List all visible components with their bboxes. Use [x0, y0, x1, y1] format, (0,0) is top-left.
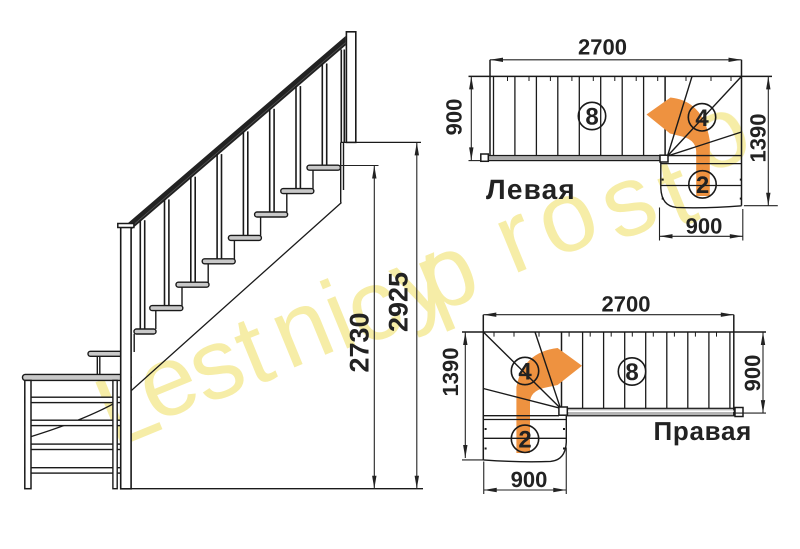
svg-text:2925: 2925 — [384, 272, 414, 332]
svg-text:8: 8 — [625, 359, 638, 386]
svg-text:4: 4 — [518, 359, 532, 386]
svg-text:900: 900 — [686, 214, 723, 239]
svg-text:Правая: Правая — [654, 416, 753, 446]
svg-text:2730: 2730 — [345, 312, 375, 372]
svg-text:2: 2 — [696, 172, 709, 199]
svg-text:2700: 2700 — [578, 35, 627, 60]
svg-text:900: 900 — [740, 355, 765, 392]
svg-text:Левая: Левая — [486, 174, 576, 205]
svg-text:4: 4 — [695, 105, 709, 132]
svg-text:1390: 1390 — [746, 114, 771, 163]
svg-text:8: 8 — [585, 104, 598, 131]
svg-text:1390: 1390 — [438, 348, 463, 397]
svg-text:2700: 2700 — [602, 292, 651, 317]
svg-text:900: 900 — [442, 99, 467, 136]
svg-text:900: 900 — [511, 467, 548, 492]
svg-text:2: 2 — [518, 426, 531, 453]
